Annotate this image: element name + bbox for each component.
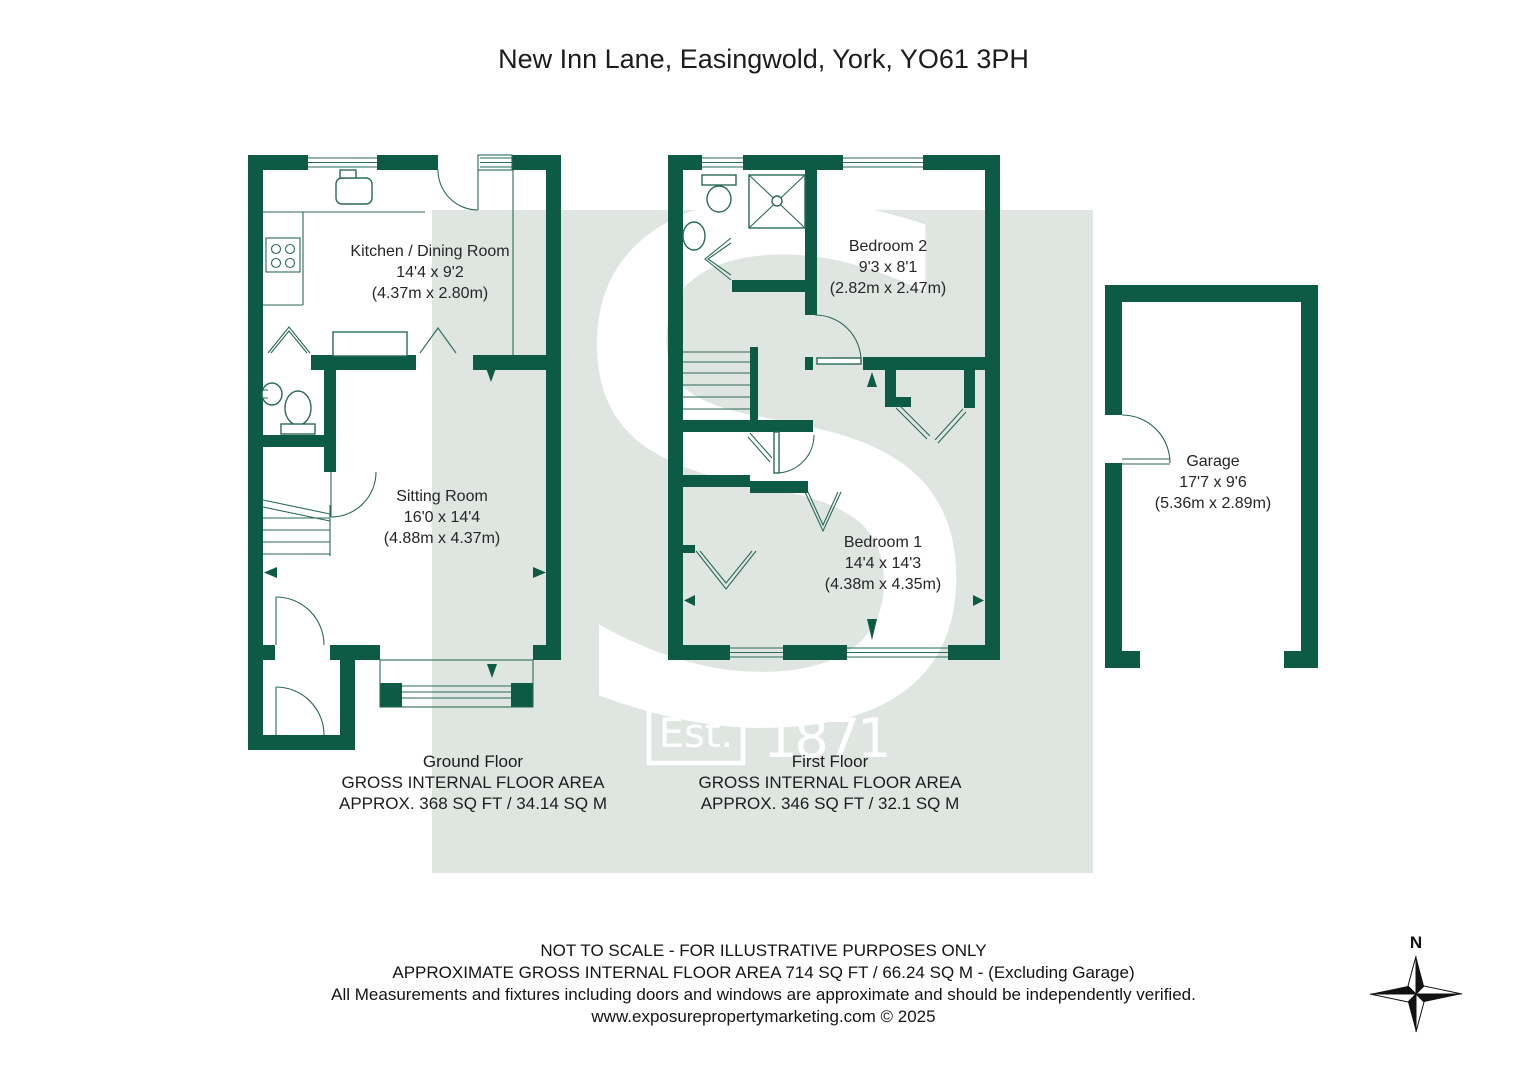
room-size-metric: (4.88m x 4.37m) (342, 528, 542, 549)
sitting-room-label: Sitting Room 16'0 x 14'4 (4.88m x 4.37m) (342, 486, 542, 549)
floor-area-label: GROSS INTERNAL FLOOR AREA (665, 772, 995, 793)
bedroom2-room-label: Bedroom 2 9'3 x 8'1 (2.82m x 2.47m) (788, 236, 988, 299)
floorplan-page: { "title": "New Inn Lane, Easingwold, Yo… (0, 0, 1527, 1080)
room-name: Bedroom 2 (788, 236, 988, 257)
ground-floor-stairs (263, 500, 330, 556)
room-name: Kitchen / Dining Room (330, 241, 530, 262)
floorplan-drawing: S Est. 1871 (0, 0, 1527, 1080)
room-name: Sitting Room (342, 486, 542, 507)
floor-area-value: APPROX. 346 SQ FT / 32.1 SQ M (665, 793, 995, 814)
room-size-imperial: 17'7 x 9'6 (1113, 472, 1313, 493)
room-name: Bedroom 1 (783, 532, 983, 553)
room-name: Garage (1113, 451, 1313, 472)
room-size-metric: (4.38m x 4.35m) (783, 574, 983, 595)
room-size-imperial: 16'0 x 14'4 (342, 507, 542, 528)
garage-room-label: Garage 17'7 x 9'6 (5.36m x 2.89m) (1113, 451, 1313, 514)
room-size-imperial: 14'4 x 9'2 (330, 262, 530, 283)
basin-icon (262, 383, 282, 405)
floor-area-label: GROSS INTERNAL FLOOR AREA (308, 772, 638, 793)
floor-name: First Floor (665, 751, 995, 772)
bedroom1-room-label: Bedroom 1 14'4 x 14'3 (4.38m x 4.35m) (783, 532, 983, 595)
room-size-imperial: 14'4 x 14'3 (783, 553, 983, 574)
floor-name: Ground Floor (308, 751, 638, 772)
floor-area-value: APPROX. 368 SQ FT / 34.14 SQ M (308, 793, 638, 814)
footer-line: APPROXIMATE GROSS INTERNAL FLOOR AREA 71… (0, 962, 1527, 984)
toilet-icon (707, 186, 731, 212)
room-size-imperial: 9'3 x 8'1 (788, 257, 988, 278)
first-floor-summary: First Floor GROSS INTERNAL FLOOR AREA AP… (665, 751, 995, 814)
toilet-icon (285, 391, 311, 425)
footer-line: NOT TO SCALE - FOR ILLUSTRATIVE PURPOSES… (0, 940, 1527, 962)
wc-fixtures (262, 383, 315, 434)
disclaimer-footer: NOT TO SCALE - FOR ILLUSTRATIVE PURPOSES… (0, 940, 1527, 1028)
sideboard-icon (333, 332, 407, 356)
basin-icon (683, 222, 705, 250)
room-size-metric: (4.37m x 2.80m) (330, 283, 530, 304)
room-size-metric: (5.36m x 2.89m) (1113, 493, 1313, 514)
ground-floor-summary: Ground Floor GROSS INTERNAL FLOOR AREA A… (308, 751, 638, 814)
hob-icon (266, 238, 300, 272)
kitchen-room-label: Kitchen / Dining Room 14'4 x 9'2 (4.37m … (330, 241, 530, 304)
footer-line: All Measurements and fixtures including … (0, 984, 1527, 1006)
sink-icon (336, 178, 372, 204)
room-size-metric: (2.82m x 2.47m) (788, 278, 988, 299)
footer-line: www.exposurepropertymarketing.com © 2025 (0, 1006, 1527, 1028)
